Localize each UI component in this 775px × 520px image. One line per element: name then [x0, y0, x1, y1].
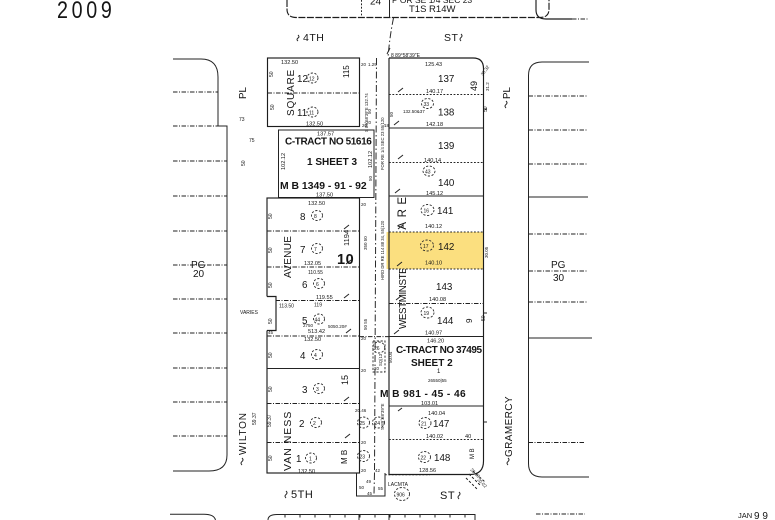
svg-text:9 9: 9 9	[754, 511, 768, 520]
svg-text:132.05: 132.05	[304, 261, 321, 267]
svg-text:906: 906	[397, 493, 406, 499]
svg-text:44: 44	[315, 318, 321, 324]
svg-text:73: 73	[239, 117, 245, 123]
svg-text:102.12: 102.12	[368, 151, 374, 168]
svg-text:WILTON: WILTON	[238, 412, 249, 455]
svg-text:21: 21	[421, 422, 427, 428]
svg-text:20: 20	[361, 202, 367, 207]
svg-text:C-TRACT NO 51616: C-TRACT NO 51616	[285, 137, 372, 148]
svg-text:1: 1	[296, 454, 301, 465]
svg-text:49: 49	[469, 81, 479, 91]
svg-text:11: 11	[297, 108, 307, 119]
svg-text:FOR RE 1/4 SEC 23 55(120: FOR RE 1/4 SEC 23 55(120	[380, 117, 385, 170]
svg-text:140.08: 140.08	[429, 297, 446, 303]
svg-text:113.50: 113.50	[279, 304, 294, 310]
svg-text:SHEET 2: SHEET 2	[411, 358, 453, 369]
svg-text:10: 10	[337, 252, 354, 268]
svg-text:2009: 2009	[57, 0, 116, 23]
svg-text:50: 50	[481, 315, 487, 321]
svg-text:132.50&37: 132.50&37	[403, 109, 425, 114]
svg-text:25: 25	[360, 421, 366, 427]
svg-text:50: 50	[389, 111, 394, 117]
svg-text:ST: ST	[444, 32, 459, 44]
svg-text:SQ(13: SQ(13	[378, 353, 383, 366]
svg-text:30: 30	[553, 273, 565, 284]
svg-text:145.12: 145.12	[426, 191, 443, 197]
svg-text:128.56: 128.56	[419, 468, 436, 474]
svg-text:ST: ST	[440, 490, 455, 502]
svg-text:350 50: 350 50	[363, 236, 368, 250]
svg-text:50: 50	[268, 455, 274, 461]
svg-text:HIRD DR RE 114 88 34, 55(120: HIRD DR RE 114 88 34, 55(120	[380, 220, 385, 280]
svg-text:8 89°58'39"E: 8 89°58'39"E	[391, 53, 421, 59]
svg-text:7: 7	[314, 247, 317, 253]
svg-text:15: 15	[340, 375, 350, 385]
svg-text:2: 2	[299, 419, 304, 430]
svg-text:140.02: 140.02	[426, 434, 443, 440]
svg-text:1.29: 1.29	[368, 62, 377, 67]
svg-text:1: 1	[309, 457, 312, 463]
svg-text:55: 55	[378, 486, 384, 491]
svg-text:11: 11	[309, 111, 314, 117]
svg-text:26: 26	[374, 346, 380, 352]
svg-text:SQUARE: SQUARE	[286, 69, 297, 116]
svg-text:50: 50	[268, 213, 274, 219]
svg-text:23: 23	[360, 455, 366, 461]
svg-text:50: 50	[268, 352, 274, 358]
svg-text:119: 119	[314, 303, 322, 309]
svg-text:30.05: 30.05	[484, 246, 489, 258]
svg-text:M B 1349 - 91 - 92: M B 1349 - 91 - 92	[280, 181, 367, 192]
svg-text:115: 115	[342, 65, 351, 78]
svg-text:50: 50	[368, 175, 373, 181]
svg-text:50 55: 50 55	[363, 318, 368, 330]
svg-text:110.55: 110.55	[308, 270, 323, 276]
svg-text:139: 139	[438, 141, 454, 152]
svg-text:6: 6	[316, 282, 319, 288]
svg-text:5050.20#: 5050.20#	[328, 324, 347, 329]
svg-text:1194: 1194	[342, 230, 351, 246]
svg-text:4: 4	[314, 353, 317, 359]
svg-text:132.50: 132.50	[298, 469, 315, 475]
svg-text:C-TRACT NO 37495: C-TRACT NO 37495	[396, 345, 482, 356]
svg-text:43: 43	[425, 170, 431, 176]
svg-text:140.10: 140.10	[425, 261, 442, 267]
svg-text:20: 20	[193, 269, 205, 280]
svg-text:119.55: 119.55	[316, 295, 333, 301]
svg-text:M B 981 - 45 - 46: M B 981 - 45 - 46	[380, 389, 466, 400]
svg-text:140: 140	[438, 178, 455, 189]
svg-text:20: 20	[366, 120, 372, 125]
svg-text:75: 75	[249, 138, 255, 144]
svg-text:26550|55: 26550|55	[428, 378, 447, 383]
svg-text:132.50: 132.50	[304, 337, 321, 343]
svg-text:50: 50	[268, 318, 274, 324]
svg-text:40: 40	[465, 434, 471, 440]
svg-text:4: 4	[300, 351, 306, 362]
svg-text:140.12: 140.12	[425, 224, 442, 230]
svg-text:132.50: 132.50	[306, 122, 323, 128]
svg-text:6: 6	[302, 280, 308, 291]
svg-text:3: 3	[302, 385, 308, 396]
svg-text:1 SHEET 3: 1 SHEET 3	[307, 157, 357, 168]
svg-text:VARIES: VARIES	[240, 310, 259, 316]
svg-text:143: 143	[436, 282, 453, 293]
svg-text:LACMTA: LACMTA	[388, 482, 409, 488]
svg-text:12: 12	[309, 77, 315, 83]
svg-text:31.2: 31.2	[485, 82, 490, 91]
svg-text:20: 20	[361, 468, 367, 473]
svg-text:45: 45	[367, 491, 373, 496]
svg-text:22: 22	[421, 456, 427, 462]
svg-text:142.18: 142.18	[426, 122, 443, 128]
svg-text:T1S R14W: T1S R14W	[409, 4, 455, 15]
svg-text:20: 20	[361, 440, 367, 445]
svg-text:140.97: 140.97	[425, 331, 442, 337]
svg-text:59.37: 59.37	[267, 414, 273, 427]
svg-text:20.46: 20.46	[355, 408, 367, 413]
svg-text:19: 19	[424, 311, 430, 317]
svg-text:103.01: 103.01	[421, 401, 438, 407]
svg-text:PL: PL	[502, 86, 513, 99]
svg-text:102.12: 102.12	[281, 153, 287, 170]
svg-text:PG: PG	[551, 260, 566, 271]
svg-text:137: 137	[438, 74, 454, 85]
svg-text:144: 144	[437, 316, 454, 327]
svg-text:5TH: 5TH	[291, 489, 313, 501]
svg-text:PL: PL	[238, 86, 249, 99]
svg-text:VAN NESS: VAN NESS	[282, 411, 294, 471]
svg-text:50: 50	[367, 108, 372, 114]
svg-text:49: 49	[366, 479, 372, 484]
svg-text:132.50: 132.50	[308, 201, 325, 207]
svg-text:7: 7	[300, 245, 305, 256]
svg-text:M B: M B	[470, 448, 476, 459]
svg-text:146.20: 146.20	[427, 339, 444, 345]
svg-text:2: 2	[313, 421, 316, 427]
svg-text:147: 147	[433, 419, 449, 430]
svg-text:16: 16	[424, 209, 430, 215]
svg-text:24: 24	[375, 421, 381, 427]
svg-text:59.37: 59.37	[252, 412, 258, 425]
svg-text:50: 50	[270, 104, 276, 110]
svg-text:AVENUE: AVENUE	[283, 236, 294, 278]
svg-text:JAN: JAN	[738, 511, 752, 520]
svg-text:513.42: 513.42	[308, 329, 325, 335]
svg-text:50: 50	[241, 160, 247, 166]
svg-text:4TH: 4TH	[303, 32, 324, 44]
svg-text:138: 138	[438, 108, 455, 119]
svg-text:3: 3	[316, 387, 319, 393]
svg-text:20: 20	[361, 62, 367, 67]
svg-text:WESTMINSTER: WESTMINSTER	[398, 261, 409, 329]
svg-text:8: 8	[314, 214, 317, 220]
svg-text:8: 8	[300, 212, 306, 223]
svg-text:140.04: 140.04	[428, 411, 445, 417]
svg-text:142: 142	[438, 242, 454, 253]
svg-text:42: 42	[375, 468, 381, 473]
svg-text:20: 20	[361, 368, 367, 373]
svg-text:9: 9	[465, 318, 474, 323]
svg-text:17: 17	[423, 244, 429, 250]
svg-text:33: 33	[424, 102, 430, 108]
svg-text:M B: M B	[340, 450, 349, 464]
svg-text:50: 50	[359, 485, 365, 490]
svg-text:24: 24	[370, 0, 382, 8]
svg-text:2750: 2750	[303, 323, 314, 328]
svg-text:141: 141	[437, 206, 453, 217]
svg-text:50: 50	[269, 71, 275, 77]
svg-text:140.14: 140.14	[424, 158, 441, 164]
svg-text:GRAMERCY: GRAMERCY	[504, 396, 515, 457]
svg-text:50: 50	[268, 247, 274, 253]
svg-text:45: 45	[268, 330, 274, 335]
svg-text:140.17: 140.17	[426, 89, 443, 95]
svg-text:12: 12	[297, 74, 308, 85]
svg-text:132.50: 132.50	[281, 60, 298, 66]
svg-text:125.43: 125.43	[425, 62, 442, 68]
svg-text:148: 148	[434, 453, 451, 464]
svg-text:50: 50	[268, 386, 274, 392]
svg-text:50: 50	[268, 282, 274, 288]
